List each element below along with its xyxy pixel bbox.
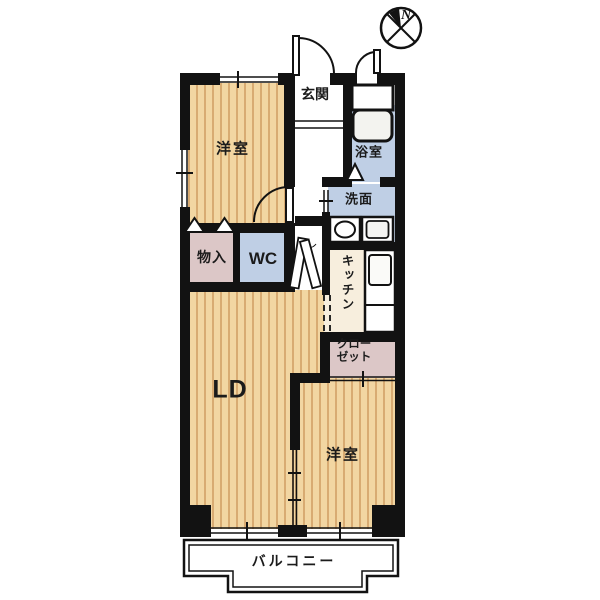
wall-segment: [343, 75, 352, 187]
label-bedroom-top: 洋室: [216, 138, 250, 159]
wall-segment: [278, 73, 295, 85]
wall-segment: [180, 207, 190, 537]
wall-segment: [290, 373, 300, 450]
wall-segment: [278, 525, 307, 537]
label-closet-line2: ゼット: [337, 351, 372, 363]
meterbox-door-icon: [356, 50, 380, 73]
label-storage: 物入: [197, 247, 227, 267]
wall-segment: [322, 212, 330, 295]
wall-segment: [372, 505, 405, 537]
label-closet: クロー ゼット: [337, 339, 372, 364]
wall-segment: [395, 73, 405, 530]
kitchen-floor: [324, 248, 395, 334]
wall-segment: [295, 216, 322, 226]
label-living-dining: LD: [212, 376, 247, 405]
wall-segment: [322, 242, 395, 250]
wall-segment: [180, 505, 211, 537]
label-kitchen: キッチン: [338, 254, 357, 312]
label-toilet: WC: [249, 249, 277, 269]
label-entrance: 玄関: [301, 84, 329, 104]
entrance-door-icon: [293, 36, 334, 75]
label-closet-line1: クロー: [337, 339, 372, 351]
floor-plan: N 洋室 玄関 浴室 洗面 物入 WC キッチン LD クロー ゼット 洋室 バ…: [0, 0, 600, 600]
label-balcony: バルコニー: [252, 551, 337, 571]
wall-segment: [180, 73, 220, 85]
label-bathroom: 浴室: [355, 142, 383, 161]
label-washroom: 洗面: [345, 189, 373, 208]
living-dining-floor-upper: [188, 290, 324, 378]
wall-segment: [188, 282, 295, 292]
wall-segment: [233, 230, 240, 287]
wall-segment: [284, 85, 295, 187]
compass-north-label: N: [400, 8, 412, 23]
wall-segment: [380, 177, 398, 187]
compass-icon: N: [381, 8, 421, 48]
label-bedroom-bottom: 洋室: [326, 444, 360, 465]
wall-segment: [322, 177, 348, 187]
